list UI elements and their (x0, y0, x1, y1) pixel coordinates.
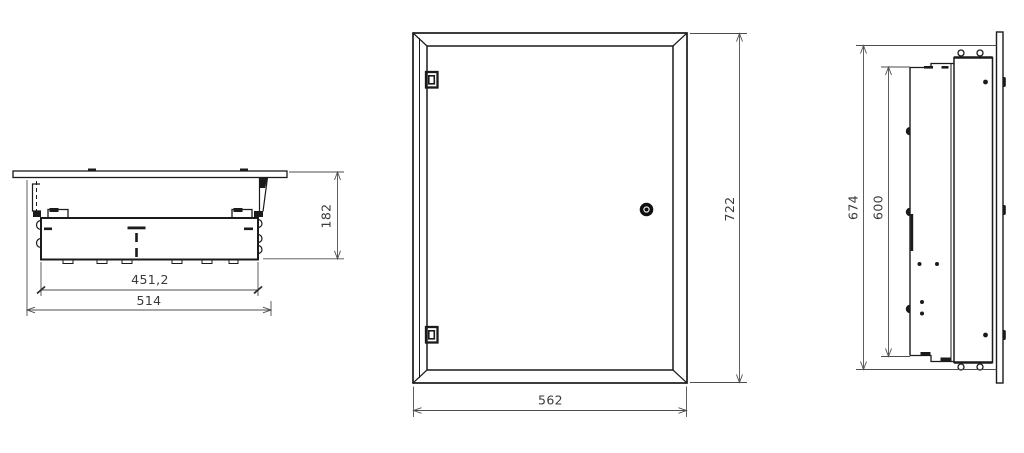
hinge-knuckle (906, 127, 910, 135)
technical-drawing-page: 451,2 514 182 (0, 0, 1024, 453)
rivet-dot (918, 262, 922, 266)
rivet-dot (935, 262, 939, 266)
mounting-clip (48, 208, 68, 218)
side-inner-panel (906, 64, 954, 362)
dim-label-overall-width: 514 (136, 293, 161, 308)
dimension-side-inner-height: 600 (871, 67, 911, 357)
door-lock (640, 203, 654, 217)
flange-plate (13, 171, 287, 178)
flange-bump (1003, 77, 1006, 87)
dimension-front-width: 562 (414, 387, 687, 418)
technical-drawing-canvas: 451,2 514 182 (0, 0, 1024, 453)
front-view: 562 722 (413, 33, 747, 417)
hole-mark (983, 80, 988, 85)
dimension-depth: 182 (263, 172, 344, 259)
rivet-dot (920, 300, 924, 304)
side-flange (997, 32, 1004, 383)
mounting-clip (232, 208, 252, 218)
dim-label-depth: 182 (319, 203, 334, 228)
screw-head (958, 50, 964, 56)
centerline-mark (128, 227, 146, 230)
flange-tab (88, 169, 96, 172)
hinge-knuckle (906, 208, 910, 216)
dimension-overall-width: 514 (27, 180, 271, 316)
interior-mark (44, 228, 52, 231)
side-view: 674 600 (846, 32, 1006, 383)
rivet-dot (920, 312, 924, 316)
dimension-side-overall-height: 674 (846, 46, 997, 370)
hinge-knuckle (906, 305, 910, 313)
left-frame-profile (33, 181, 42, 217)
screw-head (977, 50, 983, 56)
dim-label-front-height: 722 (722, 196, 737, 221)
dim-label-side-overall-height: 674 (846, 195, 861, 220)
right-frame-profile (254, 178, 268, 218)
door-panel (427, 46, 673, 370)
dimension-inner-width: 451,2 (37, 262, 262, 296)
enclosure-body (41, 218, 258, 260)
hole-mark (983, 333, 988, 338)
miter-corner (673, 370, 687, 383)
dim-label-inner-width: 451,2 (131, 272, 169, 287)
top-view: 451,2 514 182 (13, 169, 344, 317)
dim-label-side-inner-height: 600 (871, 195, 886, 220)
miter-corner (673, 33, 687, 46)
side-body (954, 58, 993, 363)
flange-bump (1003, 330, 1006, 340)
dimension-front-height: 722 (690, 34, 747, 383)
flange-bump (1003, 205, 1006, 215)
flange-tab (240, 169, 248, 172)
interior-mark (244, 228, 253, 231)
dim-label-front-width: 562 (538, 393, 563, 408)
